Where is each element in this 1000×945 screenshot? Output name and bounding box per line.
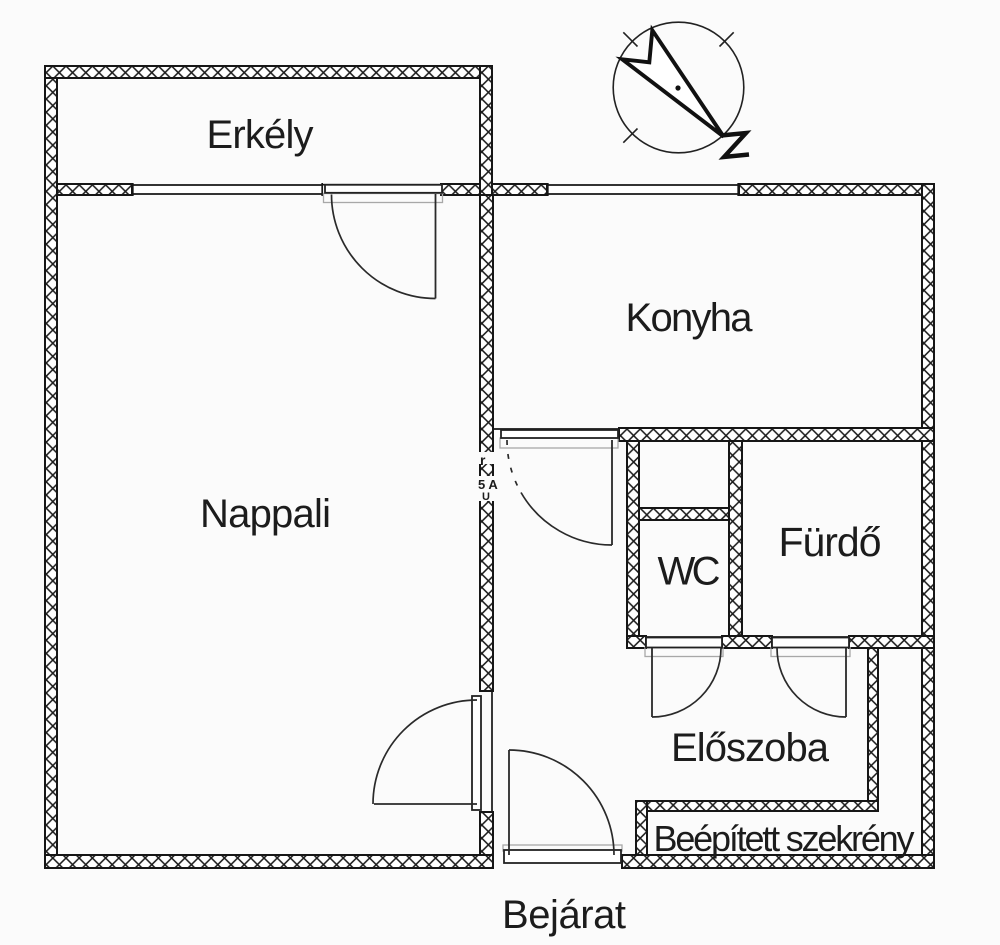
svg-text:r: r xyxy=(480,452,486,468)
svg-text:Bejárat: Bejárat xyxy=(502,893,626,937)
svg-text:Konyha: Konyha xyxy=(626,296,754,340)
svg-text:WC: WC xyxy=(658,550,721,594)
svg-text:5 A: 5 A xyxy=(478,477,498,492)
svg-text:Erkély: Erkély xyxy=(207,113,314,157)
svg-text:Fürdő: Fürdő xyxy=(779,519,882,565)
svg-text:Nappali: Nappali xyxy=(200,492,331,536)
svg-text:Előszoba: Előszoba xyxy=(671,726,830,770)
svg-text:U: U xyxy=(482,491,490,503)
svg-text:Beépített szekrény: Beépített szekrény xyxy=(654,818,915,859)
